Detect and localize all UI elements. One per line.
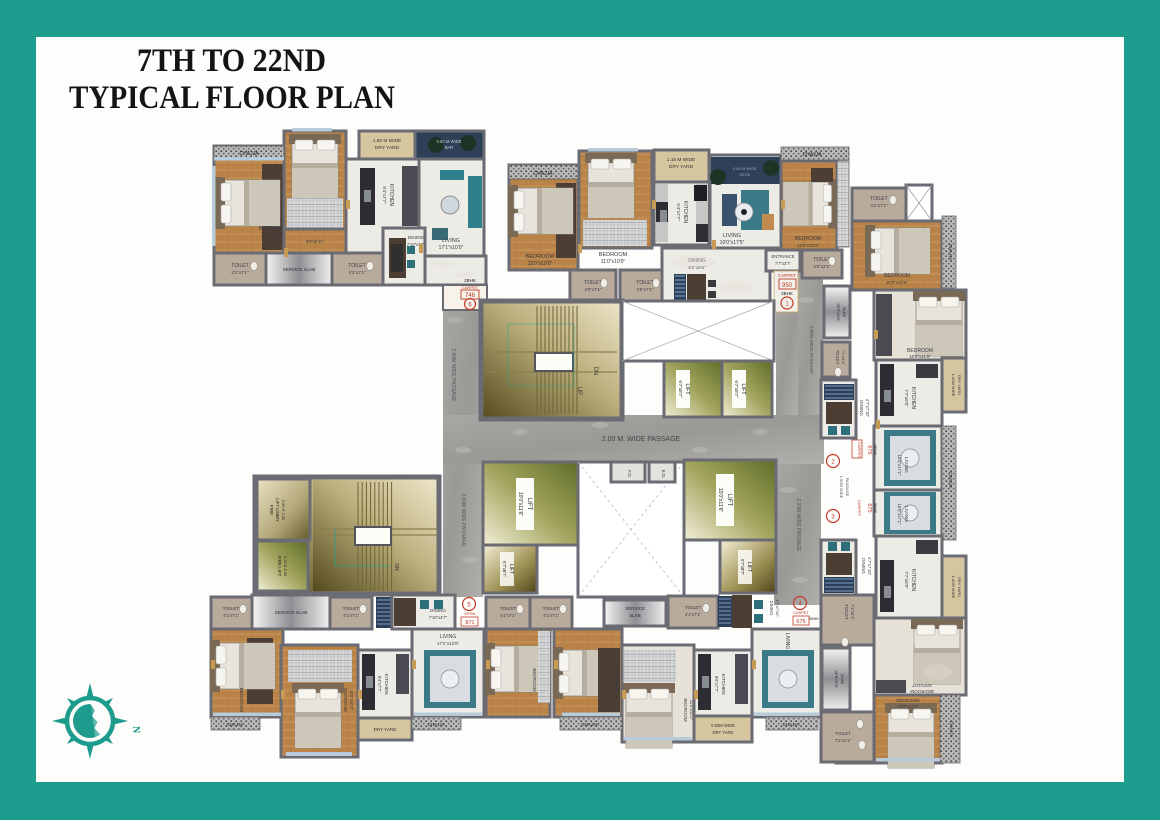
svg-text:TOILET: TOILET — [844, 604, 849, 620]
svg-text:7'1"x4'1": 7'1"x4'1" — [835, 738, 851, 743]
svg-text:DINING: DINING — [408, 235, 425, 241]
svg-text:4'7"x7'10": 4'7"x7'10" — [775, 599, 780, 617]
svg-text:DN: DN — [393, 563, 399, 571]
svg-text:KITCHEN: KITCHEN — [388, 184, 394, 206]
svg-text:871: 871 — [465, 620, 474, 626]
svg-text:LIVING: LIVING — [442, 238, 460, 244]
svg-text:8'4"x7'7": 8'4"x7'7" — [377, 676, 382, 692]
svg-text:DN: DN — [592, 367, 598, 376]
svg-text:2.15 X 2.00: 2.15 X 2.00 — [283, 556, 288, 577]
svg-text:6'7"x8'7": 6'7"x8'7" — [678, 380, 683, 398]
svg-text:2BHK: 2BHK — [873, 445, 878, 456]
svg-text:10'0"x17'1": 10'0"x17'1" — [897, 504, 902, 525]
svg-text:TYPICAL FLOOR PLAN: TYPICAL FLOOR PLAN — [69, 80, 395, 116]
svg-text:4'7"x7'10": 4'7"x7'10" — [865, 399, 870, 418]
svg-text:4'1"x7'1": 4'1"x7'1" — [500, 613, 516, 618]
svg-text:8'6"x7'7": 8'6"x7'7" — [714, 676, 719, 692]
svg-text:BEDROOM: BEDROOM — [615, 668, 620, 692]
svg-text:17'1"x10'0": 17'1"x10'0" — [439, 245, 464, 251]
svg-text:TOILET: TOILET — [813, 257, 830, 263]
svg-text:10'0"x11'0": 10'0"x11'0" — [909, 354, 931, 359]
svg-text:KITCHEN: KITCHEN — [682, 201, 688, 223]
svg-text:5'5"x5'11": 5'5"x5'11" — [306, 239, 325, 244]
svg-text:BEDROOM: BEDROOM — [599, 252, 628, 258]
svg-text:FIRE: FIRE — [269, 505, 274, 515]
svg-text:11'0"x10'2": 11'0"x10'2" — [349, 690, 354, 711]
svg-text:12'6"x10'0": 12'6"x10'0" — [261, 233, 286, 239]
svg-text:CARPET: CARPET — [462, 285, 479, 290]
svg-text:7'10"x4'7": 7'10"x4'7" — [429, 615, 448, 620]
svg-text:0.60 M WIDE: 0.60 M WIDE — [733, 166, 757, 171]
svg-text:CARPET: CARPET — [857, 442, 862, 459]
svg-text:BEDROOM: BEDROOM — [343, 688, 348, 712]
svg-text:4'5"x7'1": 4'5"x7'1" — [636, 287, 654, 292]
svg-text:BEDROOM: BEDROOM — [884, 273, 910, 279]
svg-text:2BHK: 2BHK — [809, 617, 819, 621]
svg-text:TOILET: TOILET — [685, 605, 702, 611]
svg-text:LIVING: LIVING — [903, 506, 909, 522]
svg-text:TOILET: TOILET — [835, 350, 840, 365]
svg-text:4'1"x7'1": 4'1"x7'1" — [231, 270, 249, 275]
svg-text:KITCHEN: KITCHEN — [910, 387, 916, 409]
svg-text:BAR: BAR — [445, 145, 454, 150]
svg-text:BEDROOM: BEDROOM — [526, 254, 555, 260]
svg-text:TOILET: TOILET — [343, 606, 360, 612]
svg-text:DINING: DINING — [430, 608, 446, 613]
svg-text:2.00 M. WIDE PASSAGE: 2.00 M. WIDE PASSAGE — [602, 436, 681, 443]
svg-text:4'1"x7'1": 4'1"x7'1" — [685, 612, 701, 617]
svg-text:BEDROOM: BEDROOM — [896, 698, 920, 703]
svg-text:KITCHEN: KITCHEN — [383, 673, 389, 695]
svg-text:SERVICE SLAB: SERVICE SLAB — [283, 267, 315, 272]
svg-text:KITCHEN: KITCHEN — [910, 569, 916, 591]
svg-text:6'7"x8'7": 6'7"x8'7" — [502, 561, 507, 577]
svg-text:1.60 M WIDE: 1.60 M WIDE — [373, 138, 402, 144]
svg-text:CHAJJA: CHAJJA — [226, 722, 243, 727]
svg-text:SERVICE: SERVICE — [836, 303, 841, 321]
svg-text:7'7"x3'7": 7'7"x3'7" — [775, 261, 791, 266]
svg-text:DRY YARD: DRY YARD — [669, 164, 694, 170]
svg-text:4'1"x7'1": 4'1"x7'1" — [223, 613, 239, 618]
svg-text:KERA: KERA — [465, 611, 476, 616]
svg-text:1.00M WIDE: 1.00M WIDE — [951, 374, 956, 397]
svg-text:2.00M WIDE PASSAGE: 2.00M WIDE PASSAGE — [460, 493, 466, 547]
svg-text:CHAJJA: CHAJJA — [948, 243, 953, 260]
svg-text:TOILET: TOILET — [584, 280, 601, 286]
svg-text:LIFT: LIFT — [746, 562, 752, 572]
svg-text:CHAJJA: CHAJJA — [949, 720, 954, 737]
svg-text:DRY YARD: DRY YARD — [957, 577, 962, 597]
svg-text:SLAB: SLAB — [629, 613, 641, 618]
svg-text:CHAJJA: CHAJJA — [948, 471, 953, 488]
svg-text:BEDROOM: BEDROOM — [795, 236, 821, 242]
svg-text:SERVICE: SERVICE — [834, 670, 839, 688]
svg-text:0.93M WIDE: 0.93M WIDE — [711, 723, 735, 728]
svg-text:TOILET: TOILET — [231, 263, 248, 269]
svg-text:675: 675 — [796, 619, 805, 625]
svg-text:TOILET: TOILET — [543, 606, 560, 612]
svg-text:12'0"x10'2": 12'0"x10'2" — [797, 243, 820, 248]
svg-text:CHAJJA: CHAJJA — [782, 722, 799, 727]
svg-text:4'1"x7'1": 4'1"x7'1" — [543, 613, 559, 618]
svg-text:LIVING: LIVING — [440, 634, 457, 640]
svg-text:TOILET: TOILET — [870, 196, 887, 202]
svg-text:3BHK: 3BHK — [781, 291, 793, 296]
svg-text:CHAJJA: CHAJJA — [581, 722, 598, 727]
svg-text:17'1"x12'0": 17'1"x12'0" — [437, 641, 460, 646]
svg-text:DESK: DESK — [740, 172, 751, 177]
svg-text:7'7"x6'8": 7'7"x6'8" — [904, 571, 909, 589]
svg-text:BEDROOM: BEDROOM — [532, 668, 537, 692]
svg-text:SLAB: SLAB — [842, 307, 847, 318]
svg-text:TOILET: TOILET — [835, 731, 851, 736]
svg-text:CARPET: CARPET — [793, 611, 809, 615]
svg-text:UP: UP — [576, 387, 582, 395]
svg-text:10'0"x11'6": 10'0"x11'6" — [717, 488, 723, 512]
svg-text:7'1"x4'1": 7'1"x4'1" — [841, 349, 846, 365]
svg-text:2.60 X 2.30: 2.60 X 2.30 — [281, 500, 286, 521]
svg-text:10'0"x11'0": 10'0"x11'0" — [911, 683, 932, 688]
svg-text:ENTRANCE: ENTRANCE — [771, 254, 794, 259]
svg-text:6'7"x8'7": 6'7"x8'7" — [734, 380, 739, 398]
svg-text:2BHK: 2BHK — [464, 278, 476, 283]
svg-text:10'0"x17'1": 10'0"x17'1" — [897, 455, 902, 476]
svg-text:KITCHEN: KITCHEN — [720, 673, 726, 695]
svg-text:4'1"x7'1": 4'1"x7'1" — [870, 203, 888, 208]
svg-text:2.00M WIDE PASSAGE: 2.00M WIDE PASSAGE — [809, 326, 814, 374]
svg-text:LIFT: LIFT — [726, 494, 732, 507]
svg-text:675: 675 — [866, 445, 872, 454]
svg-text:2.00M WIDE PASSAGE: 2.00M WIDE PASSAGE — [450, 348, 456, 402]
svg-text:10'0"x12'6": 10'0"x12'6" — [898, 704, 919, 709]
svg-text:DRY YARD: DRY YARD — [375, 145, 400, 151]
svg-text:4'1"x7'1": 4'1"x7'1" — [343, 613, 359, 618]
svg-text:TOILET: TOILET — [500, 606, 517, 612]
svg-text:F.D.: F.D. — [627, 470, 632, 478]
svg-text:DINING: DINING — [861, 558, 866, 574]
svg-text:DRY YARD: DRY YARD — [374, 727, 397, 732]
svg-text:4'5"x2'1": 4'5"x2'1" — [813, 264, 831, 269]
svg-text:6'4"x7'7": 6'4"x7'7" — [676, 203, 681, 221]
svg-text:1.50M WIDE: 1.50M WIDE — [839, 476, 844, 499]
svg-text:CHAJJA: CHAJJA — [240, 151, 260, 157]
svg-text:TOILET: TOILET — [348, 263, 365, 269]
svg-text:LIVING: LIVING — [784, 633, 790, 650]
svg-text:675: 675 — [866, 503, 872, 512]
svg-text:12'0"x10'0": 12'0"x10'0" — [528, 261, 553, 267]
svg-text:CARPET: CARPET — [857, 500, 862, 517]
svg-text:BEDROOM: BEDROOM — [910, 689, 934, 694]
svg-text:CHAJJA: CHAJJA — [803, 152, 823, 158]
svg-text:1.15 M WIDE: 1.15 M WIDE — [667, 157, 696, 163]
svg-text:7'1"x4'1": 7'1"x4'1" — [850, 604, 855, 620]
svg-text:10'0"x17'5": 10'0"x17'5" — [720, 240, 745, 246]
svg-text:BEDROOM: BEDROOM — [683, 698, 688, 722]
svg-text:CHAJJA: CHAJJA — [427, 722, 444, 727]
svg-text:LIFT: LIFT — [740, 383, 746, 395]
svg-text:BEDROOM: BEDROOM — [238, 688, 244, 713]
svg-text:SERVICE: SERVICE — [625, 606, 645, 611]
svg-text:7TH TO 22ND: 7TH TO 22ND — [137, 43, 326, 79]
svg-text:950: 950 — [782, 283, 793, 289]
svg-text:0.60 M WIDE: 0.60 M WIDE — [437, 139, 462, 144]
svg-text:LIVING: LIVING — [903, 457, 909, 473]
svg-text:CARPET: CARPET — [778, 273, 797, 278]
svg-text:CHAJJA: CHAJJA — [534, 171, 554, 177]
svg-text:SLAB: SLAB — [840, 674, 845, 685]
svg-text:FIRE LIFT: FIRE LIFT — [277, 556, 282, 577]
svg-text:DRY YARD: DRY YARD — [957, 375, 962, 395]
svg-text:11'0"x10'0": 11'0"x10'0" — [601, 259, 625, 265]
svg-text:4'7"x7'10": 4'7"x7'10" — [867, 557, 872, 576]
svg-text:4'0"x7'1": 4'0"x7'1" — [584, 287, 602, 292]
svg-text:LIFT: LIFT — [684, 383, 690, 395]
svg-text:DINING: DINING — [769, 601, 774, 616]
svg-text:6'7"x8'7": 6'7"x8'7" — [740, 559, 745, 575]
svg-text:DINING: DINING — [859, 400, 864, 416]
svg-text:LIFT: LIFT — [526, 498, 532, 511]
svg-text:2BHK: 2BHK — [873, 503, 878, 514]
svg-text:TOILET: TOILET — [636, 280, 653, 286]
svg-text:LIFT LOBBY: LIFT LOBBY — [275, 498, 280, 522]
svg-text:10'0"x12'6": 10'0"x12'6" — [886, 280, 909, 285]
svg-text:PASSAGE: PASSAGE — [845, 478, 850, 497]
svg-text:LIFT: LIFT — [508, 564, 514, 574]
svg-text:DRY YARD: DRY YARD — [712, 730, 733, 735]
svg-text:2.00M WIDE PASSAGE: 2.00M WIDE PASSAGE — [795, 498, 801, 552]
svg-text:TOILET: TOILET — [223, 606, 240, 612]
svg-text:E.D.: E.D. — [661, 470, 666, 479]
svg-text:10'0"x11'6": 10'0"x11'6" — [517, 492, 523, 516]
svg-text:SERVICE SLAB: SERVICE SLAB — [275, 610, 307, 615]
svg-text:4'1"x7'1": 4'1"x7'1" — [348, 270, 366, 275]
svg-text:7'7"x6'8": 7'7"x6'8" — [904, 389, 909, 407]
svg-text:1.00M WIDE: 1.00M WIDE — [951, 576, 956, 599]
svg-text:N: N — [130, 726, 141, 734]
svg-text:LIVING: LIVING — [723, 233, 741, 239]
svg-text:8'4"x7'7": 8'4"x7'7" — [382, 186, 387, 204]
